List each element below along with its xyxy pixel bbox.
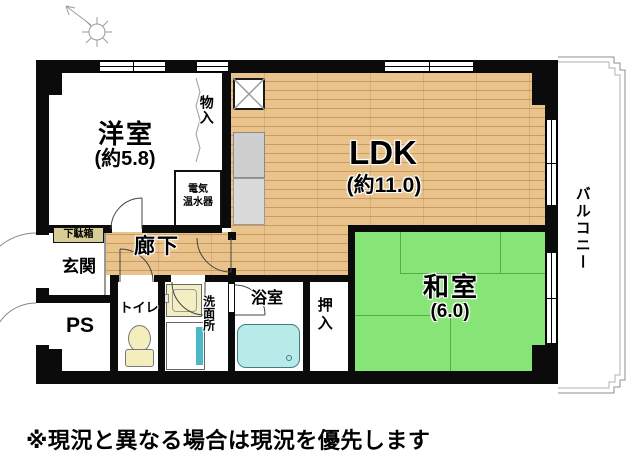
tatami-line [500, 232, 501, 273]
wall [303, 282, 310, 382]
toilet-bowl-icon [128, 325, 151, 352]
window-icon [197, 61, 228, 72]
balcony-railing-outer [558, 57, 625, 393]
ldk-area: (約11.0) [347, 175, 422, 197]
entrance-label: 玄関 [62, 258, 96, 276]
washing-machine-accent [196, 327, 203, 365]
toilet-label: トイレ [119, 301, 158, 315]
tatami-line [450, 315, 451, 371]
bathtub-icon [237, 324, 300, 368]
wall [142, 225, 222, 233]
shoe-cabinet-box: 下駄箱 [53, 227, 104, 243]
wall-corner [36, 349, 62, 384]
door-arc-pipe-space [0, 303, 36, 347]
washroom-label: 洗面所 [202, 295, 215, 331]
door-arc-western-room [111, 198, 142, 229]
hallway-label: 廊下 [134, 236, 180, 258]
wall-corner [36, 60, 62, 95]
sliding-window-icon [545, 253, 558, 343]
range-hatch-icon [233, 78, 265, 110]
japanese-room-area: (6.0) [430, 302, 469, 322]
water-heater-label: 電気 温水器 [176, 183, 220, 209]
pipe-space-label: PS [66, 315, 94, 337]
western-room-label: 洋室 [98, 121, 154, 148]
kitchen-counter-icon [233, 132, 265, 178]
door-opening [229, 284, 234, 312]
bathroom-label: 浴室 [251, 291, 283, 308]
floor-plan: 下駄箱 洋室 (約5.8) LDK (約11.0) 和室 (6.0) 廊下 玄関… [0, 0, 640, 472]
toilet-tank-icon [125, 349, 154, 367]
oshiire-label: 押入 [316, 297, 332, 333]
refrigerator-space-icon [233, 178, 265, 225]
sink-basin-icon [172, 289, 197, 312]
water-heater-line1: 電気 [176, 183, 220, 196]
compass-icon [66, 6, 112, 47]
storage-label: 物入 [199, 95, 214, 125]
balcony-label: バルコニー [574, 186, 590, 271]
wall [228, 232, 236, 240]
wall [222, 73, 231, 228]
window-icon [100, 60, 165, 73]
tatami-line [400, 232, 401, 273]
japanese-room-label: 和室 [423, 274, 479, 301]
wall [110, 282, 118, 382]
door-arc-entrance [0, 233, 36, 289]
wall-corner [532, 60, 558, 105]
ldk-label: LDK [349, 136, 417, 171]
entrance-step-line [104, 233, 106, 295]
wall [158, 282, 165, 382]
water-heater-line2: 温水器 [176, 196, 220, 209]
wall [348, 225, 558, 232]
wall [348, 225, 355, 371]
wall [36, 295, 110, 303]
bathtub-drain-icon [286, 355, 292, 361]
shoe-cabinet-label: 下駄箱 [54, 228, 103, 242]
western-room-area: (約5.8) [94, 149, 155, 170]
door-opening [119, 275, 154, 282]
disclaimer-note: ※現況と異なる場合は現況を優先します [26, 423, 430, 455]
window-icon [385, 60, 473, 73]
sliding-window-icon [545, 120, 558, 205]
door-opening [171, 275, 205, 282]
wall-corner [532, 345, 558, 384]
wall [228, 268, 236, 282]
